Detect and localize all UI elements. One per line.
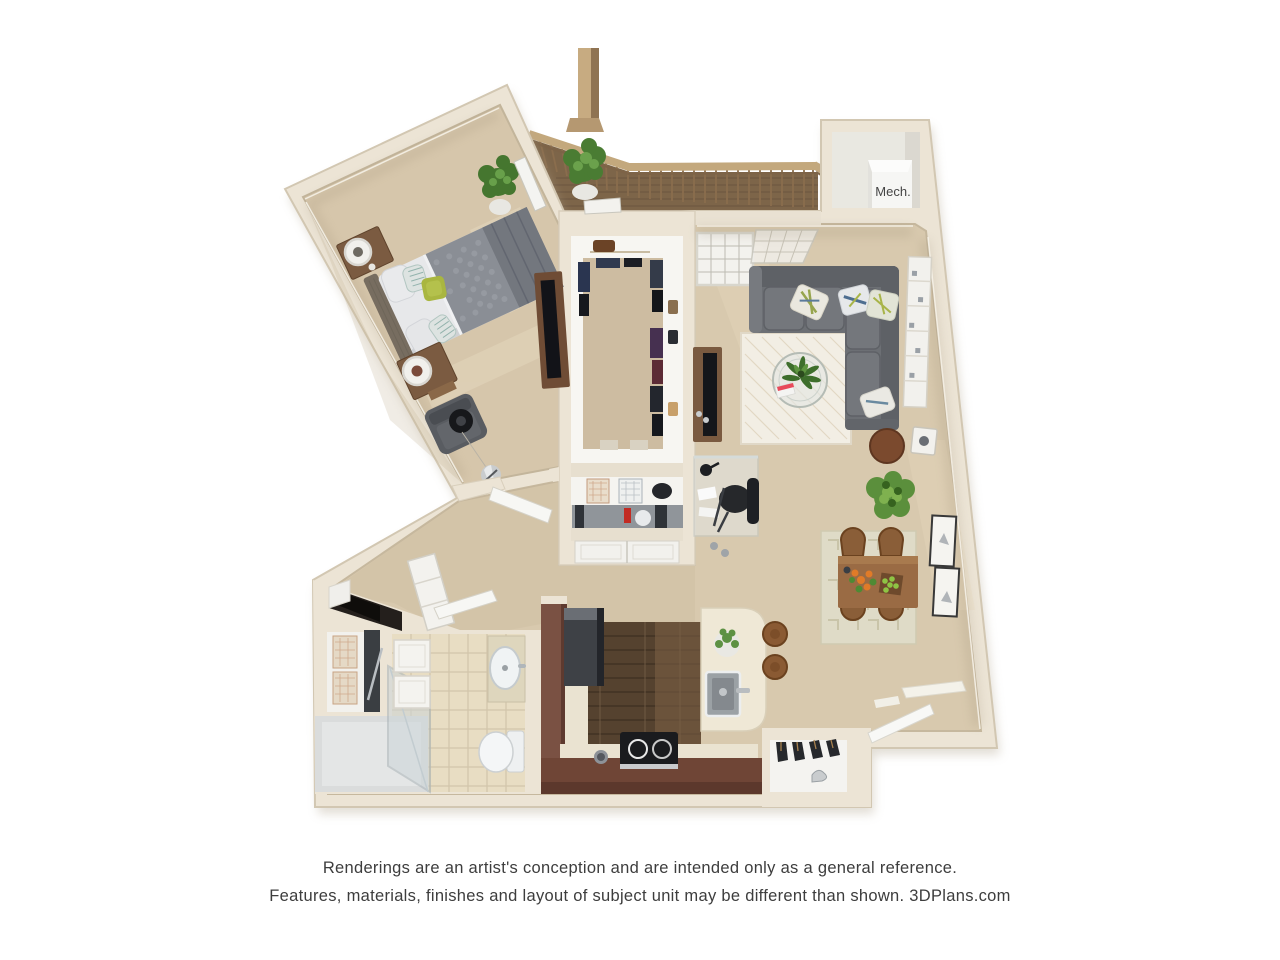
svg-text:Mech.: Mech. (875, 184, 910, 199)
